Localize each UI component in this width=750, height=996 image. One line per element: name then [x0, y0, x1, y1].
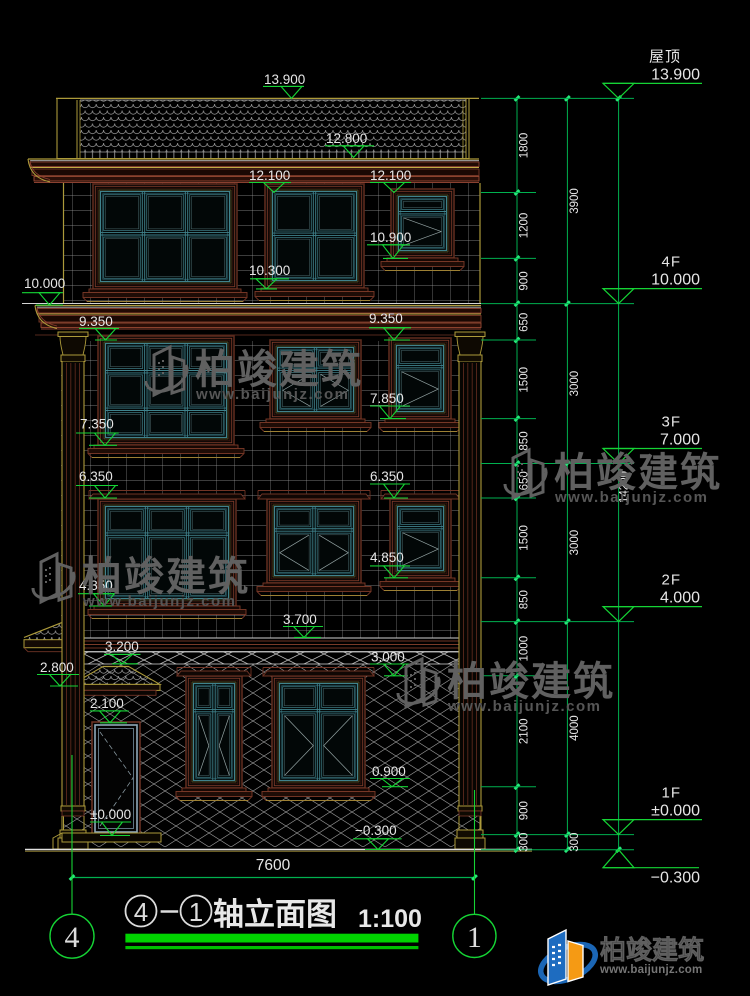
svg-text:4000: 4000 [569, 715, 581, 741]
svg-text:2F: 2F [661, 572, 681, 589]
svg-text:6.350: 6.350 [79, 469, 113, 484]
svg-text:3.200: 3.200 [105, 639, 139, 654]
svg-text:300: 300 [569, 833, 581, 852]
svg-text:4: 4 [134, 897, 148, 927]
svg-text:1: 1 [467, 921, 482, 954]
svg-text:±0.000: ±0.000 [651, 803, 700, 820]
svg-text:±0.000: ±0.000 [90, 807, 131, 822]
svg-text:2.100: 2.100 [90, 696, 124, 711]
svg-text:www.baijunjz.com: www.baijunjz.com [599, 964, 702, 976]
svg-text:www.baijunjz.com: www.baijunjz.com [447, 698, 601, 715]
svg-text:1F: 1F [661, 785, 681, 802]
svg-text:10.900: 10.900 [370, 230, 411, 245]
svg-text:轴立面图: 轴立面图 [213, 897, 337, 932]
svg-text:10.000: 10.000 [651, 272, 700, 289]
svg-text:1:100: 1:100 [358, 905, 422, 933]
svg-text:2100: 2100 [519, 719, 531, 745]
svg-text:4F: 4F [661, 254, 681, 271]
svg-text:3900: 3900 [569, 188, 581, 214]
svg-text:−0.300: −0.300 [355, 823, 397, 838]
svg-text:3.700: 3.700 [283, 612, 317, 627]
svg-text:12.800: 12.800 [326, 131, 367, 146]
svg-text:10.000: 10.000 [24, 276, 65, 291]
svg-text:2.800: 2.800 [40, 660, 74, 675]
svg-text:www.baijunjz.com: www.baijunjz.com [195, 386, 349, 403]
svg-text:1500: 1500 [519, 367, 531, 393]
svg-text:−0.300: −0.300 [651, 870, 700, 887]
svg-text:www.baijunjz.com: www.baijunjz.com [82, 593, 236, 610]
svg-text:7.350: 7.350 [80, 417, 114, 432]
svg-text:3000: 3000 [569, 530, 581, 556]
svg-text:1500: 1500 [519, 525, 531, 551]
svg-text:12.100: 12.100 [370, 168, 411, 183]
svg-text:1: 1 [189, 897, 203, 927]
svg-text:300: 300 [519, 833, 531, 852]
svg-text:3000: 3000 [569, 371, 581, 397]
svg-text:850: 850 [519, 431, 531, 450]
svg-text:900: 900 [519, 271, 531, 290]
svg-text:9.350: 9.350 [369, 311, 403, 326]
svg-text:1000: 1000 [519, 636, 531, 662]
svg-text:4.000: 4.000 [660, 590, 700, 607]
svg-text:6.350: 6.350 [370, 469, 404, 484]
svg-text:650: 650 [519, 313, 531, 332]
svg-text:3.000: 3.000 [371, 650, 405, 665]
svg-text:13.900: 13.900 [651, 66, 700, 83]
svg-text:9.350: 9.350 [79, 314, 113, 329]
svg-text:4: 4 [65, 921, 80, 954]
svg-text:10.300: 10.300 [249, 263, 290, 278]
svg-text:1800: 1800 [519, 133, 531, 159]
svg-text:1200: 1200 [519, 213, 531, 239]
svg-text:7.000: 7.000 [660, 432, 700, 449]
svg-text:7.850: 7.850 [370, 391, 404, 406]
svg-text:柏竣建筑: 柏竣建筑 [600, 935, 704, 965]
svg-text:0.900: 0.900 [372, 764, 406, 779]
svg-text:www.baijunjz.com: www.baijunjz.com [554, 489, 708, 506]
svg-text:13.900: 13.900 [264, 72, 305, 87]
svg-text:3F: 3F [661, 414, 681, 431]
svg-text:4.850: 4.850 [370, 550, 404, 565]
svg-text:850: 850 [519, 590, 531, 609]
svg-text:屋顶: 屋顶 [649, 48, 681, 65]
svg-text:900: 900 [519, 801, 531, 820]
svg-text:7600: 7600 [256, 857, 291, 874]
svg-text:12.100: 12.100 [249, 168, 290, 183]
